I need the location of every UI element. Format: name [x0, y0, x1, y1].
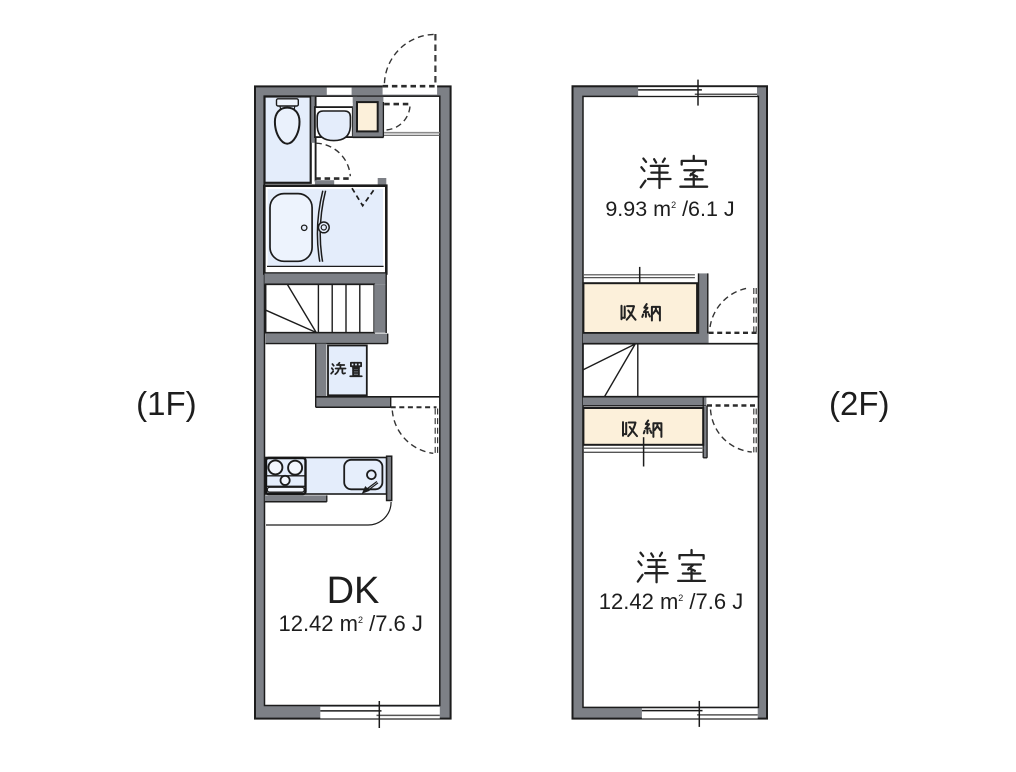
svg-text:9.93 m2 /6.1 J: 9.93 m2 /6.1 J	[605, 197, 734, 221]
svg-text:DK: DK	[327, 570, 380, 612]
svg-text:12.42 m2 /7.6 J: 12.42 m2 /7.6 J	[278, 611, 422, 636]
svg-text:(2F): (2F)	[829, 385, 890, 422]
svg-text:12.42 m2 /7.6 J: 12.42 m2 /7.6 J	[599, 589, 743, 614]
svg-text:(1F): (1F)	[136, 385, 197, 422]
